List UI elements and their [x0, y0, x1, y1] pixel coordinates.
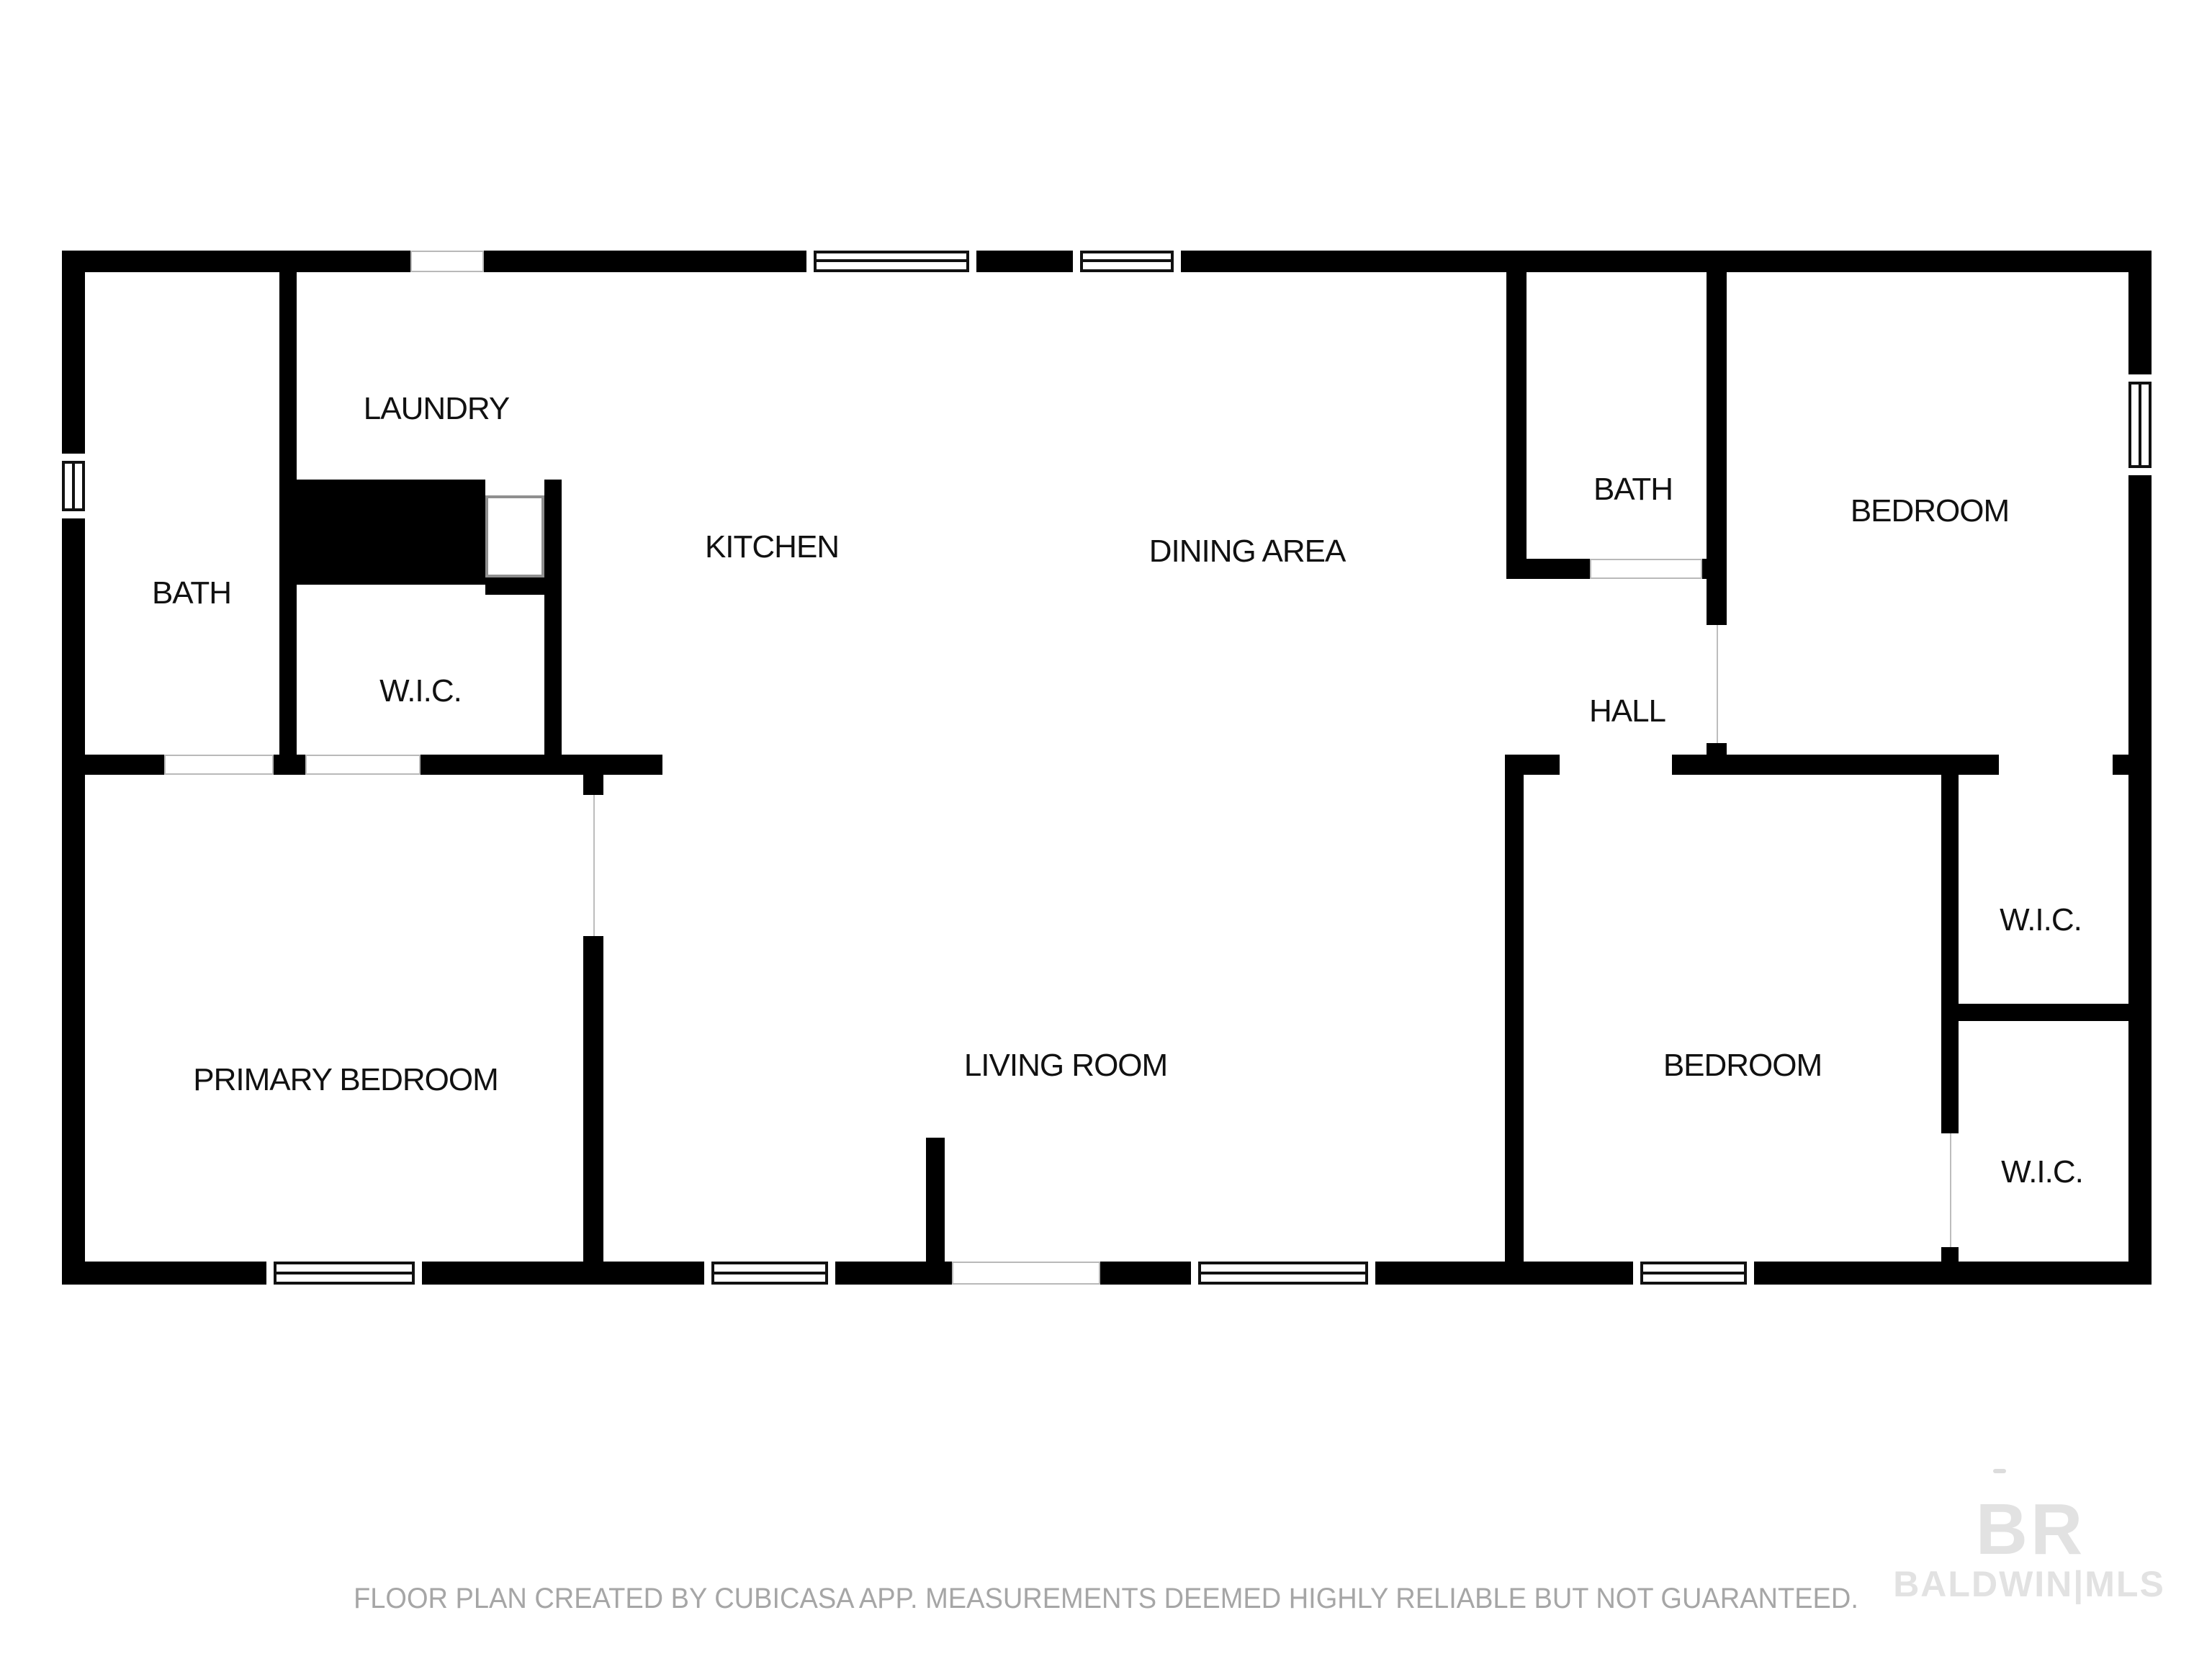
- wall-segment: [1959, 1004, 2128, 1021]
- wall-segment: [1100, 1262, 1191, 1285]
- room-label-wic-lower: W.I.C.: [2001, 1154, 2083, 1191]
- wall-segment: [421, 755, 662, 775]
- wall-segment: [274, 755, 305, 775]
- room-label-wic-upper: W.I.C.: [2000, 902, 2082, 939]
- wall-segment: [835, 1262, 952, 1285]
- room-label-bedroom-top: BEDROOM: [1851, 493, 2009, 530]
- wall-segment: [1181, 251, 2152, 272]
- door-wic-lower-hairline: [1950, 1133, 1951, 1247]
- window-dining-top-divider: [1080, 259, 1174, 262]
- door-bedroom-top-hairline: [1717, 625, 1718, 743]
- window-kitchen-top-divider: [814, 259, 969, 262]
- wall-segment: [297, 480, 485, 585]
- wall-segment: [1506, 559, 1590, 579]
- room-label-bath-right: BATH: [1593, 471, 1673, 508]
- wall-segment: [926, 1138, 945, 1262]
- wall-segment: [2128, 475, 2152, 1285]
- door-bath-right: [1590, 559, 1702, 579]
- wall-segment: [62, 1262, 266, 1285]
- window-bedroom-right-divider: [2139, 382, 2141, 468]
- door-bath-left: [164, 755, 274, 775]
- door-primary-bedroom-hairline: [593, 795, 595, 936]
- wall-segment: [2128, 251, 2152, 374]
- wall-segment: [422, 1262, 704, 1285]
- door-wic-left: [305, 755, 421, 775]
- door-laundry-back: [410, 251, 484, 272]
- window-living-bottom-1-divider: [711, 1272, 828, 1274]
- wall-segment: [1707, 272, 1727, 625]
- wall-segment: [62, 755, 164, 775]
- wall-segment: [1506, 272, 1527, 570]
- window-living-bottom-2-divider: [1198, 1272, 1368, 1274]
- wall-segment: [1941, 775, 1959, 1133]
- wall-segment: [583, 936, 603, 1262]
- wall-segment: [1941, 1247, 1959, 1262]
- floor-plan-page: LAUNDRYBATHKITCHENDINING AREABATHBEDROOM…: [0, 0, 2212, 1659]
- watermark-logo-monogram: BR: [1976, 1488, 2085, 1571]
- room-label-living-room: LIVING ROOM: [964, 1047, 1167, 1084]
- room-label-bath-left: BATH: [152, 575, 231, 612]
- water-heater: [485, 495, 544, 577]
- wall-segment: [62, 518, 85, 1285]
- room-label-dining-area: DINING AREA: [1149, 533, 1346, 570]
- window-bedroom-bottom-divider: [1640, 1272, 1747, 1274]
- watermark-logo-name: BALDWIN|MLS: [1893, 1565, 2165, 1606]
- wall-segment: [2113, 755, 2128, 775]
- door-entry: [952, 1262, 1100, 1285]
- wall-segment: [279, 272, 297, 775]
- room-label-kitchen: KITCHEN: [705, 529, 839, 566]
- wall-segment: [62, 251, 85, 454]
- room-label-bedroom-bottom: BEDROOM: [1663, 1047, 1822, 1084]
- wall-segment: [62, 251, 410, 272]
- door-bedroom-bottom: [1560, 755, 1672, 775]
- wall-segment: [544, 480, 562, 775]
- wall-segment: [484, 251, 806, 272]
- door-wic-upper: [1999, 755, 2113, 775]
- floor-plan-canvas: LAUNDRYBATHKITCHENDINING AREABATHBEDROOM…: [0, 0, 2212, 1659]
- room-label-laundry: LAUNDRY: [364, 390, 510, 428]
- wall-segment: [1672, 755, 1999, 775]
- wall-segment: [1375, 1262, 1633, 1285]
- wall-segment: [583, 755, 603, 795]
- watermark-roof-mark: [1993, 1469, 2006, 1473]
- room-label-primary-bedroom: PRIMARY BEDROOM: [193, 1061, 498, 1099]
- footer-disclaimer: FLOOR PLAN CREATED BY CUBICASA APP. MEAS…: [354, 1583, 1858, 1617]
- wall-segment: [1505, 755, 1524, 1262]
- window-primary-bottom-divider: [274, 1272, 415, 1274]
- room-label-hall: HALL: [1589, 693, 1665, 730]
- window-bath-left-divider: [72, 461, 75, 511]
- room-label-wic-left: W.I.C.: [379, 673, 462, 710]
- wall-segment: [1754, 1262, 2152, 1285]
- wall-segment: [976, 251, 1073, 272]
